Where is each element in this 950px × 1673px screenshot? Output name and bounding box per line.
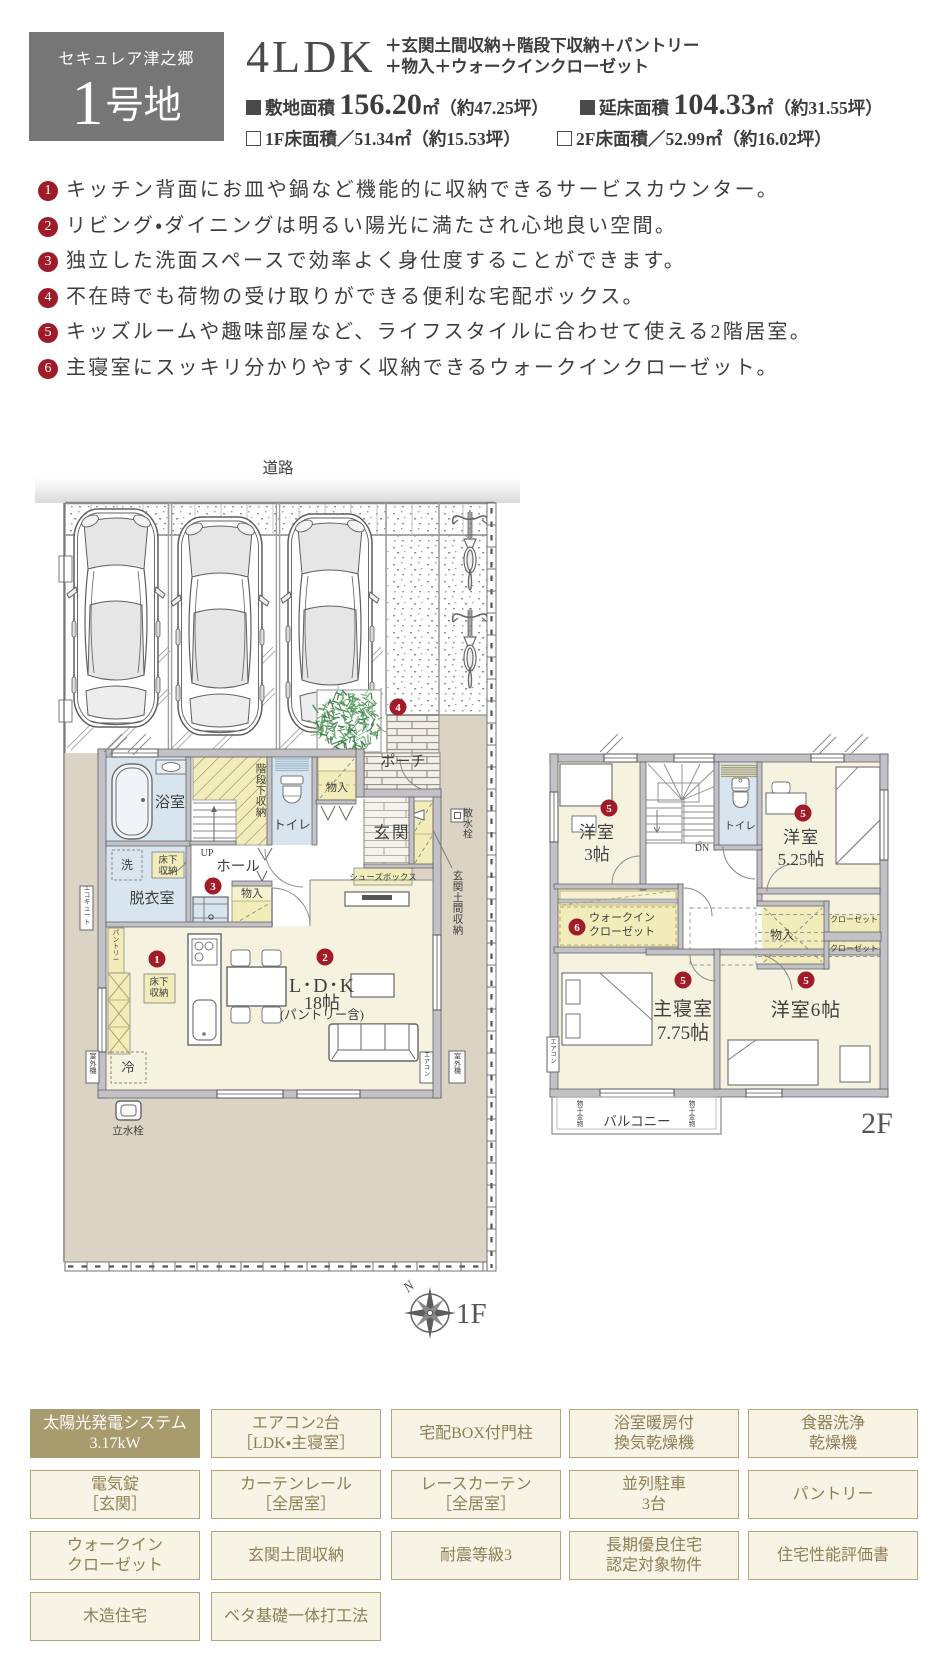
svg-text:収納: 収納 [149, 987, 168, 999]
svg-text:エアコン: エアコン [550, 1039, 556, 1065]
svg-text:立水栓: 立水栓 [112, 1124, 144, 1137]
svg-text:2F: 2F [861, 1107, 893, 1140]
svg-text:5: 5 [800, 808, 806, 820]
svg-text:エアコン: エアコン [424, 1052, 430, 1078]
svg-text:主寝室: 主寝室 [653, 998, 713, 1020]
svg-text:1F: 1F [456, 1298, 487, 1330]
svg-text:階段下収納: 階段下収納 [256, 763, 267, 819]
svg-text:物干金物: 物干金物 [689, 1099, 696, 1128]
svg-text:ウォークイン: ウォークイン [589, 911, 655, 924]
svg-text:5: 5 [606, 803, 612, 815]
svg-text:4: 4 [395, 702, 401, 714]
svg-text:床下: 床下 [158, 855, 177, 866]
svg-text:クローゼット: クローゼット [589, 925, 655, 938]
svg-text:シューズボックス: シューズボックス [349, 872, 416, 882]
svg-text:ポーチ: ポーチ [380, 753, 425, 770]
svg-text:室外機: 室外機 [454, 1052, 461, 1076]
svg-text:クローゼット: クローゼット [830, 914, 878, 924]
svg-text:6: 6 [574, 922, 580, 934]
svg-text:5: 5 [680, 975, 686, 987]
svg-text:バルコニー: バルコニー [603, 1114, 670, 1129]
svg-text:トイレ: トイレ [273, 818, 311, 832]
svg-text:ホール: ホール [216, 859, 260, 875]
svg-text:洋室: 洋室 [783, 828, 819, 847]
svg-text:物入: 物入 [770, 928, 794, 942]
svg-text:洋室: 洋室 [579, 823, 615, 842]
svg-text:DN: DN [695, 843, 709, 854]
svg-text:浴室: 浴室 [155, 794, 185, 811]
svg-text:トイレ: トイレ [724, 821, 756, 832]
svg-text:エコキュート: エコキュート [84, 885, 91, 926]
svg-text:物入: 物入 [241, 886, 263, 900]
svg-text:収納: 収納 [158, 865, 177, 877]
svg-text:1: 1 [154, 954, 160, 966]
svg-text:UP: UP [201, 848, 214, 859]
svg-text:床下: 床下 [149, 977, 168, 988]
svg-text:洗: 洗 [121, 858, 133, 872]
svg-text:脱衣室: 脱衣室 [129, 890, 174, 907]
svg-text:7.75帖: 7.75帖 [657, 1022, 709, 1044]
svg-text:冷: 冷 [121, 1060, 134, 1075]
svg-text:クローゼット: クローゼット [830, 943, 878, 953]
svg-text:物干金物: 物干金物 [577, 1099, 584, 1128]
svg-text:玄関土間収納: 玄関土間収納 [453, 869, 464, 937]
svg-text:2: 2 [322, 952, 328, 964]
svg-text:5.25帖: 5.25帖 [778, 850, 825, 869]
svg-text:室外機: 室外機 [90, 1052, 97, 1076]
svg-text:物入: 物入 [326, 780, 348, 794]
svg-text:散水栓: 散水栓 [463, 807, 473, 841]
svg-text:道路: 道路 [262, 459, 294, 477]
svg-text:5: 5 [803, 975, 809, 987]
svg-text:N: N [400, 1278, 418, 1297]
svg-text:(パントリー含): (パントリー含) [280, 1008, 364, 1022]
svg-text:洋室6帖: 洋室6帖 [771, 999, 842, 1021]
svg-text:3帖: 3帖 [584, 845, 610, 864]
svg-text:パントリー: パントリー [113, 929, 120, 964]
svg-text:3: 3 [210, 881, 216, 893]
svg-text:玄関: 玄関 [374, 823, 411, 842]
